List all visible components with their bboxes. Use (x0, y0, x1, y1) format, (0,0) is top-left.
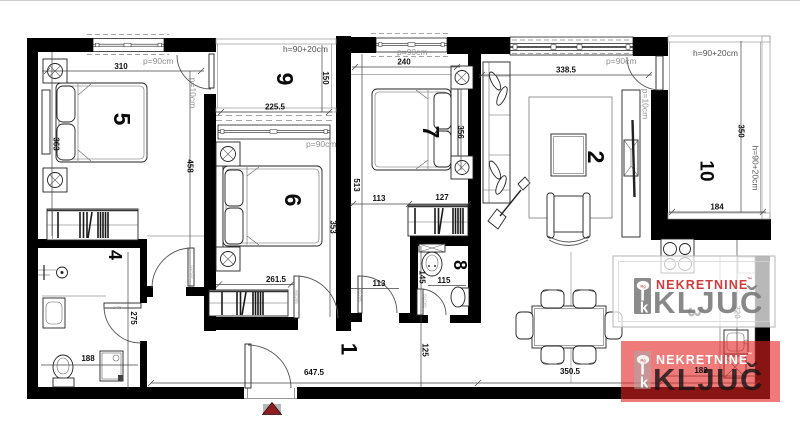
svg-text:4: 4 (105, 250, 125, 260)
svg-text:115: 115 (438, 276, 451, 285)
svg-text:10: 10 (696, 160, 717, 181)
svg-text:90/205: 90/205 (189, 265, 194, 279)
svg-text:6: 6 (280, 194, 306, 207)
svg-text:p=90cm: p=90cm (397, 47, 427, 57)
svg-text:513: 513 (352, 178, 361, 192)
svg-text:2: 2 (583, 151, 609, 164)
svg-text:9: 9 (272, 73, 298, 86)
svg-text:5: 5 (109, 113, 135, 126)
svg-text:188: 188 (81, 354, 95, 363)
svg-text:125: 125 (421, 343, 430, 357)
svg-text:338.5: 338.5 (556, 66, 577, 75)
svg-text:91/205: 91/205 (358, 288, 363, 302)
svg-text:p=10cm: p=10cm (641, 89, 651, 119)
svg-text:p=90cm: p=90cm (306, 139, 336, 149)
svg-text:127: 127 (435, 193, 449, 202)
svg-text:353: 353 (329, 220, 338, 234)
svg-text:113: 113 (373, 194, 386, 203)
svg-text:k: k (640, 300, 649, 317)
svg-text:61/205: 61/205 (423, 294, 428, 308)
svg-text:k: k (640, 375, 649, 392)
svg-text:150: 150 (321, 71, 330, 85)
svg-text:275: 275 (129, 311, 138, 325)
svg-text:113: 113 (373, 279, 386, 288)
svg-text:225.5: 225.5 (265, 103, 286, 112)
svg-text:7: 7 (418, 126, 444, 139)
svg-text:182: 182 (694, 366, 708, 375)
svg-text:261.5: 261.5 (266, 275, 287, 284)
svg-text:458: 458 (186, 159, 195, 173)
svg-text:356: 356 (456, 125, 465, 139)
svg-text:184: 184 (710, 203, 724, 212)
svg-text:1: 1 (337, 343, 362, 355)
svg-text:350: 350 (737, 124, 746, 138)
svg-text:Rg: Rg (640, 283, 646, 288)
svg-text:p=90cm: p=90cm (606, 56, 636, 66)
svg-text:KLJUČ: KLJUČ (653, 284, 764, 320)
svg-text:™: ™ (747, 277, 752, 283)
svg-text:350.5: 350.5 (560, 367, 581, 376)
svg-text:h=90+20cm: h=90+20cm (751, 146, 761, 191)
svg-text:KLJUČ: KLJUČ (653, 361, 764, 397)
svg-text:™: ™ (747, 352, 752, 358)
svg-text:8: 8 (450, 260, 470, 270)
svg-text:647.5: 647.5 (304, 368, 325, 377)
svg-text:80/205: 80/205 (294, 290, 299, 304)
svg-text:Rg: Rg (640, 357, 646, 362)
svg-text:145: 145 (418, 270, 427, 284)
svg-text:h=90+20cm: h=90+20cm (693, 48, 738, 58)
svg-text:1/05: 1/05 (113, 305, 122, 310)
svg-text:363: 363 (52, 137, 61, 151)
svg-text:240: 240 (397, 58, 411, 67)
svg-text:p=10cm: p=10cm (188, 78, 198, 108)
svg-text:310: 310 (114, 62, 128, 71)
svg-text:h=90+20cm: h=90+20cm (283, 44, 328, 54)
svg-text:p=90cm: p=90cm (143, 56, 173, 66)
